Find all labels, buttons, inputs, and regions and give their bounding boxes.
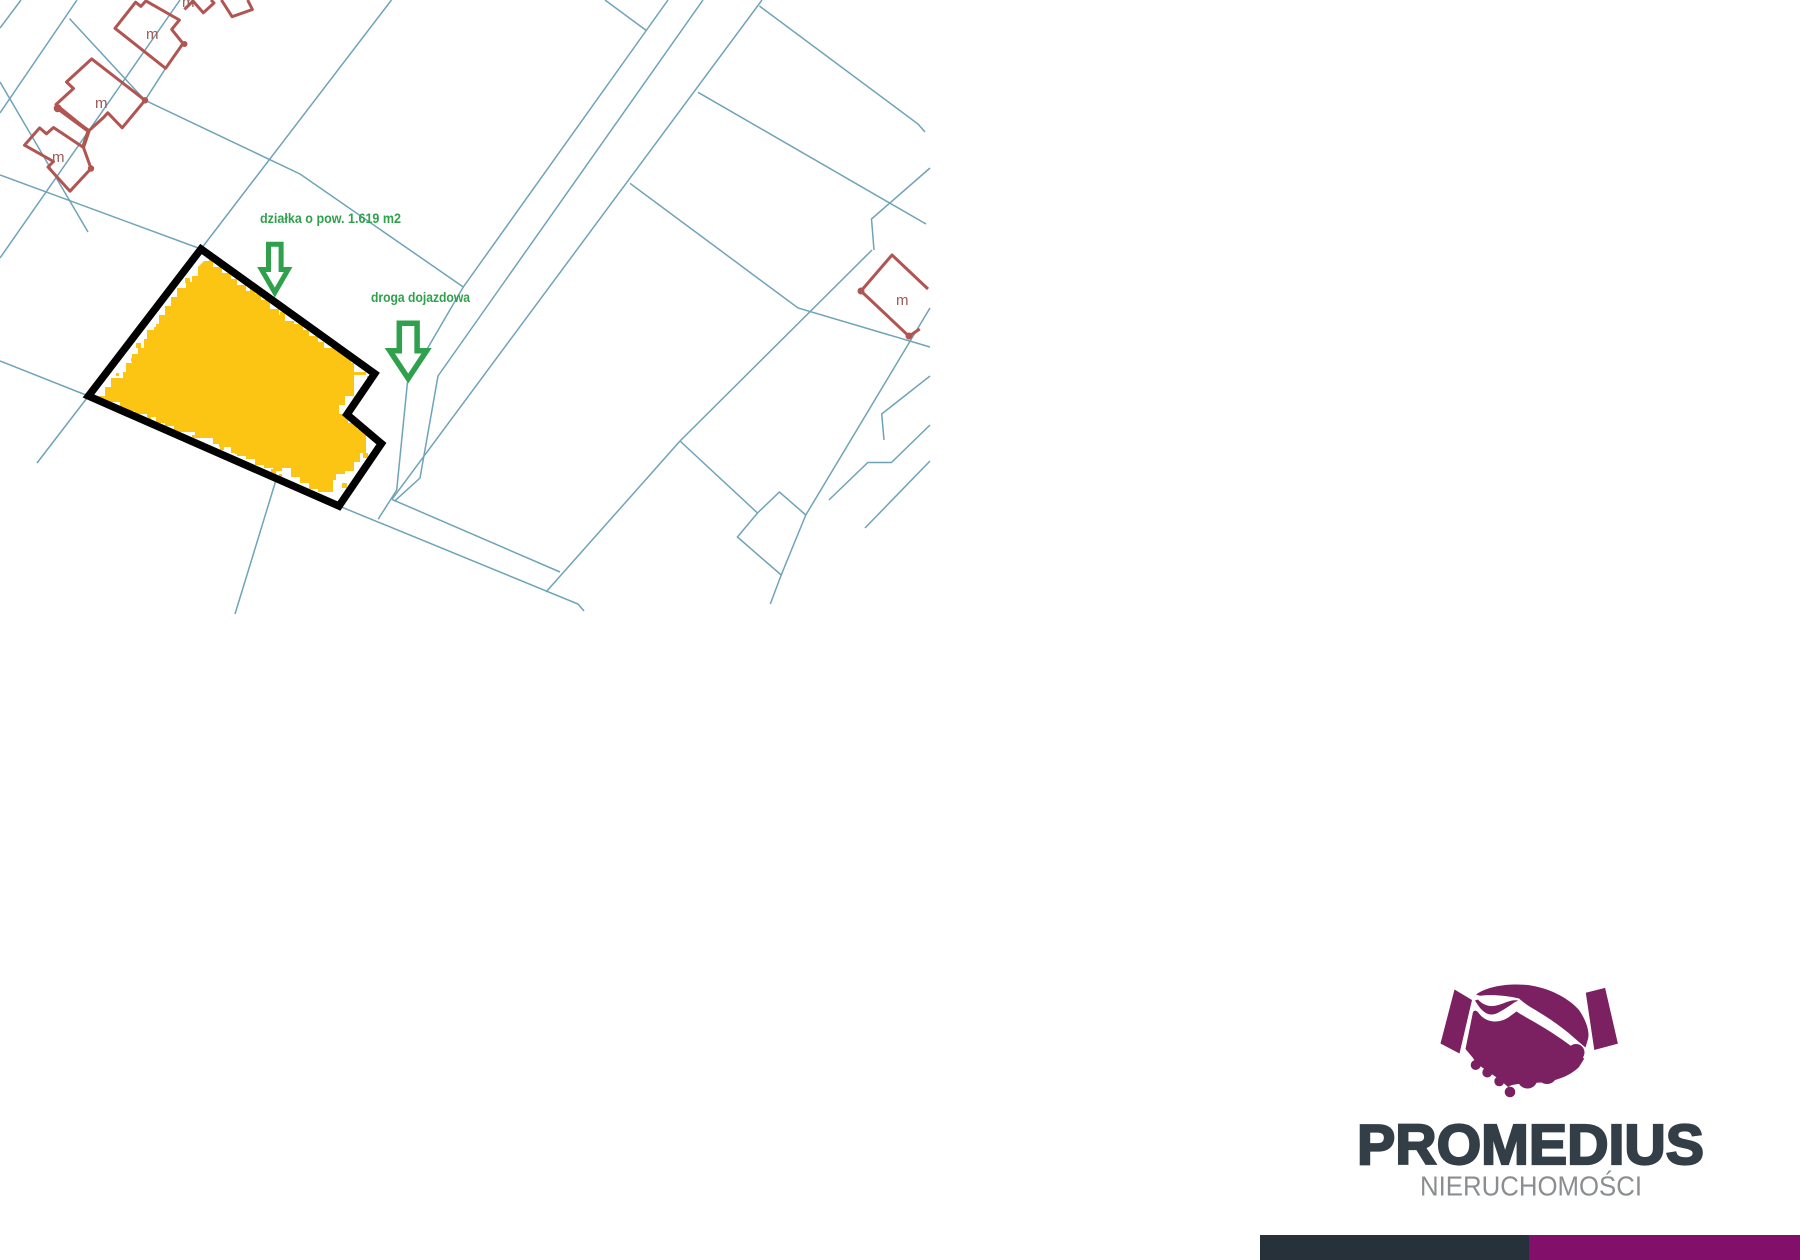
svg-text:m: m [146,26,159,43]
svg-text:m: m [896,292,909,309]
svg-text:m: m [95,95,108,112]
svg-text:m: m [52,149,65,166]
svg-text:droga dojazdowa: droga dojazdowa [371,289,470,305]
svg-text:działka o pow. 1.619 m2: działka o pow. 1.619 m2 [260,210,401,226]
svg-text:m: m [182,0,195,11]
svg-text:NIERUCHOMOŚCI: NIERUCHOMOŚCI [1420,1170,1642,1202]
svg-text:PROMEDIUS: PROMEDIUS [1357,1113,1704,1177]
